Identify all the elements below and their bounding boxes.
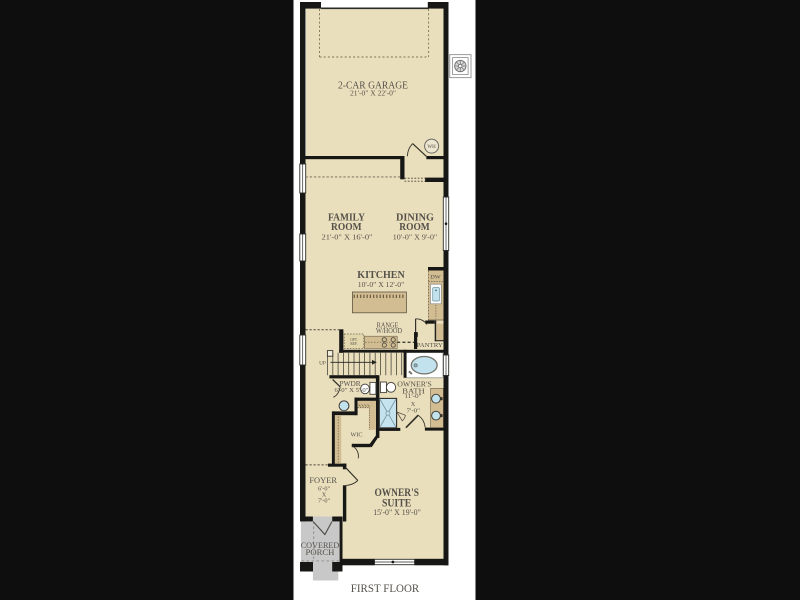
svg-text:W/HOOD: W/HOOD xyxy=(376,328,402,335)
svg-text:PANTRY: PANTRY xyxy=(417,342,443,349)
svg-text:21'-0" X 22'-0": 21'-0" X 22'-0" xyxy=(350,89,396,98)
svg-text:21'-0" X 16'-0": 21'-0" X 16'-0" xyxy=(322,233,373,242)
svg-text:10'-0" X 12'-0": 10'-0" X 12'-0" xyxy=(358,280,405,289)
svg-text:DW: DW xyxy=(430,275,441,281)
svg-text:7'-0": 7'-0" xyxy=(318,499,331,505)
svg-text:X: X xyxy=(322,492,327,498)
svg-text:PORCH: PORCH xyxy=(306,547,335,557)
svg-text:UP: UP xyxy=(319,360,326,366)
svg-text:PWDR.: PWDR. xyxy=(340,380,363,388)
svg-text:WH: WH xyxy=(427,145,436,150)
svg-text:15'-0" X 19'-0": 15'-0" X 19'-0" xyxy=(373,508,421,517)
svg-text:6'-0" X 5'-0": 6'-0" X 5'-0" xyxy=(335,388,370,394)
svg-text:X: X xyxy=(411,402,416,408)
svg-text:OPT.: OPT. xyxy=(350,338,358,342)
svg-text:6'-0": 6'-0" xyxy=(318,486,331,492)
svg-text:11'-0": 11'-0" xyxy=(405,394,423,400)
svg-text:7'-0": 7'-0" xyxy=(407,408,421,414)
svg-text:REF.: REF. xyxy=(350,342,357,346)
svg-text:FOYER: FOYER xyxy=(309,475,337,485)
svg-text:10'-0" X 9'-0": 10'-0" X 9'-0" xyxy=(393,233,437,242)
svg-text:ROOM: ROOM xyxy=(331,221,362,233)
svg-text:ROOM: ROOM xyxy=(399,221,430,233)
svg-text:WIC: WIC xyxy=(351,432,363,439)
svg-text:FIRST FLOOR: FIRST FLOOR xyxy=(351,581,419,595)
